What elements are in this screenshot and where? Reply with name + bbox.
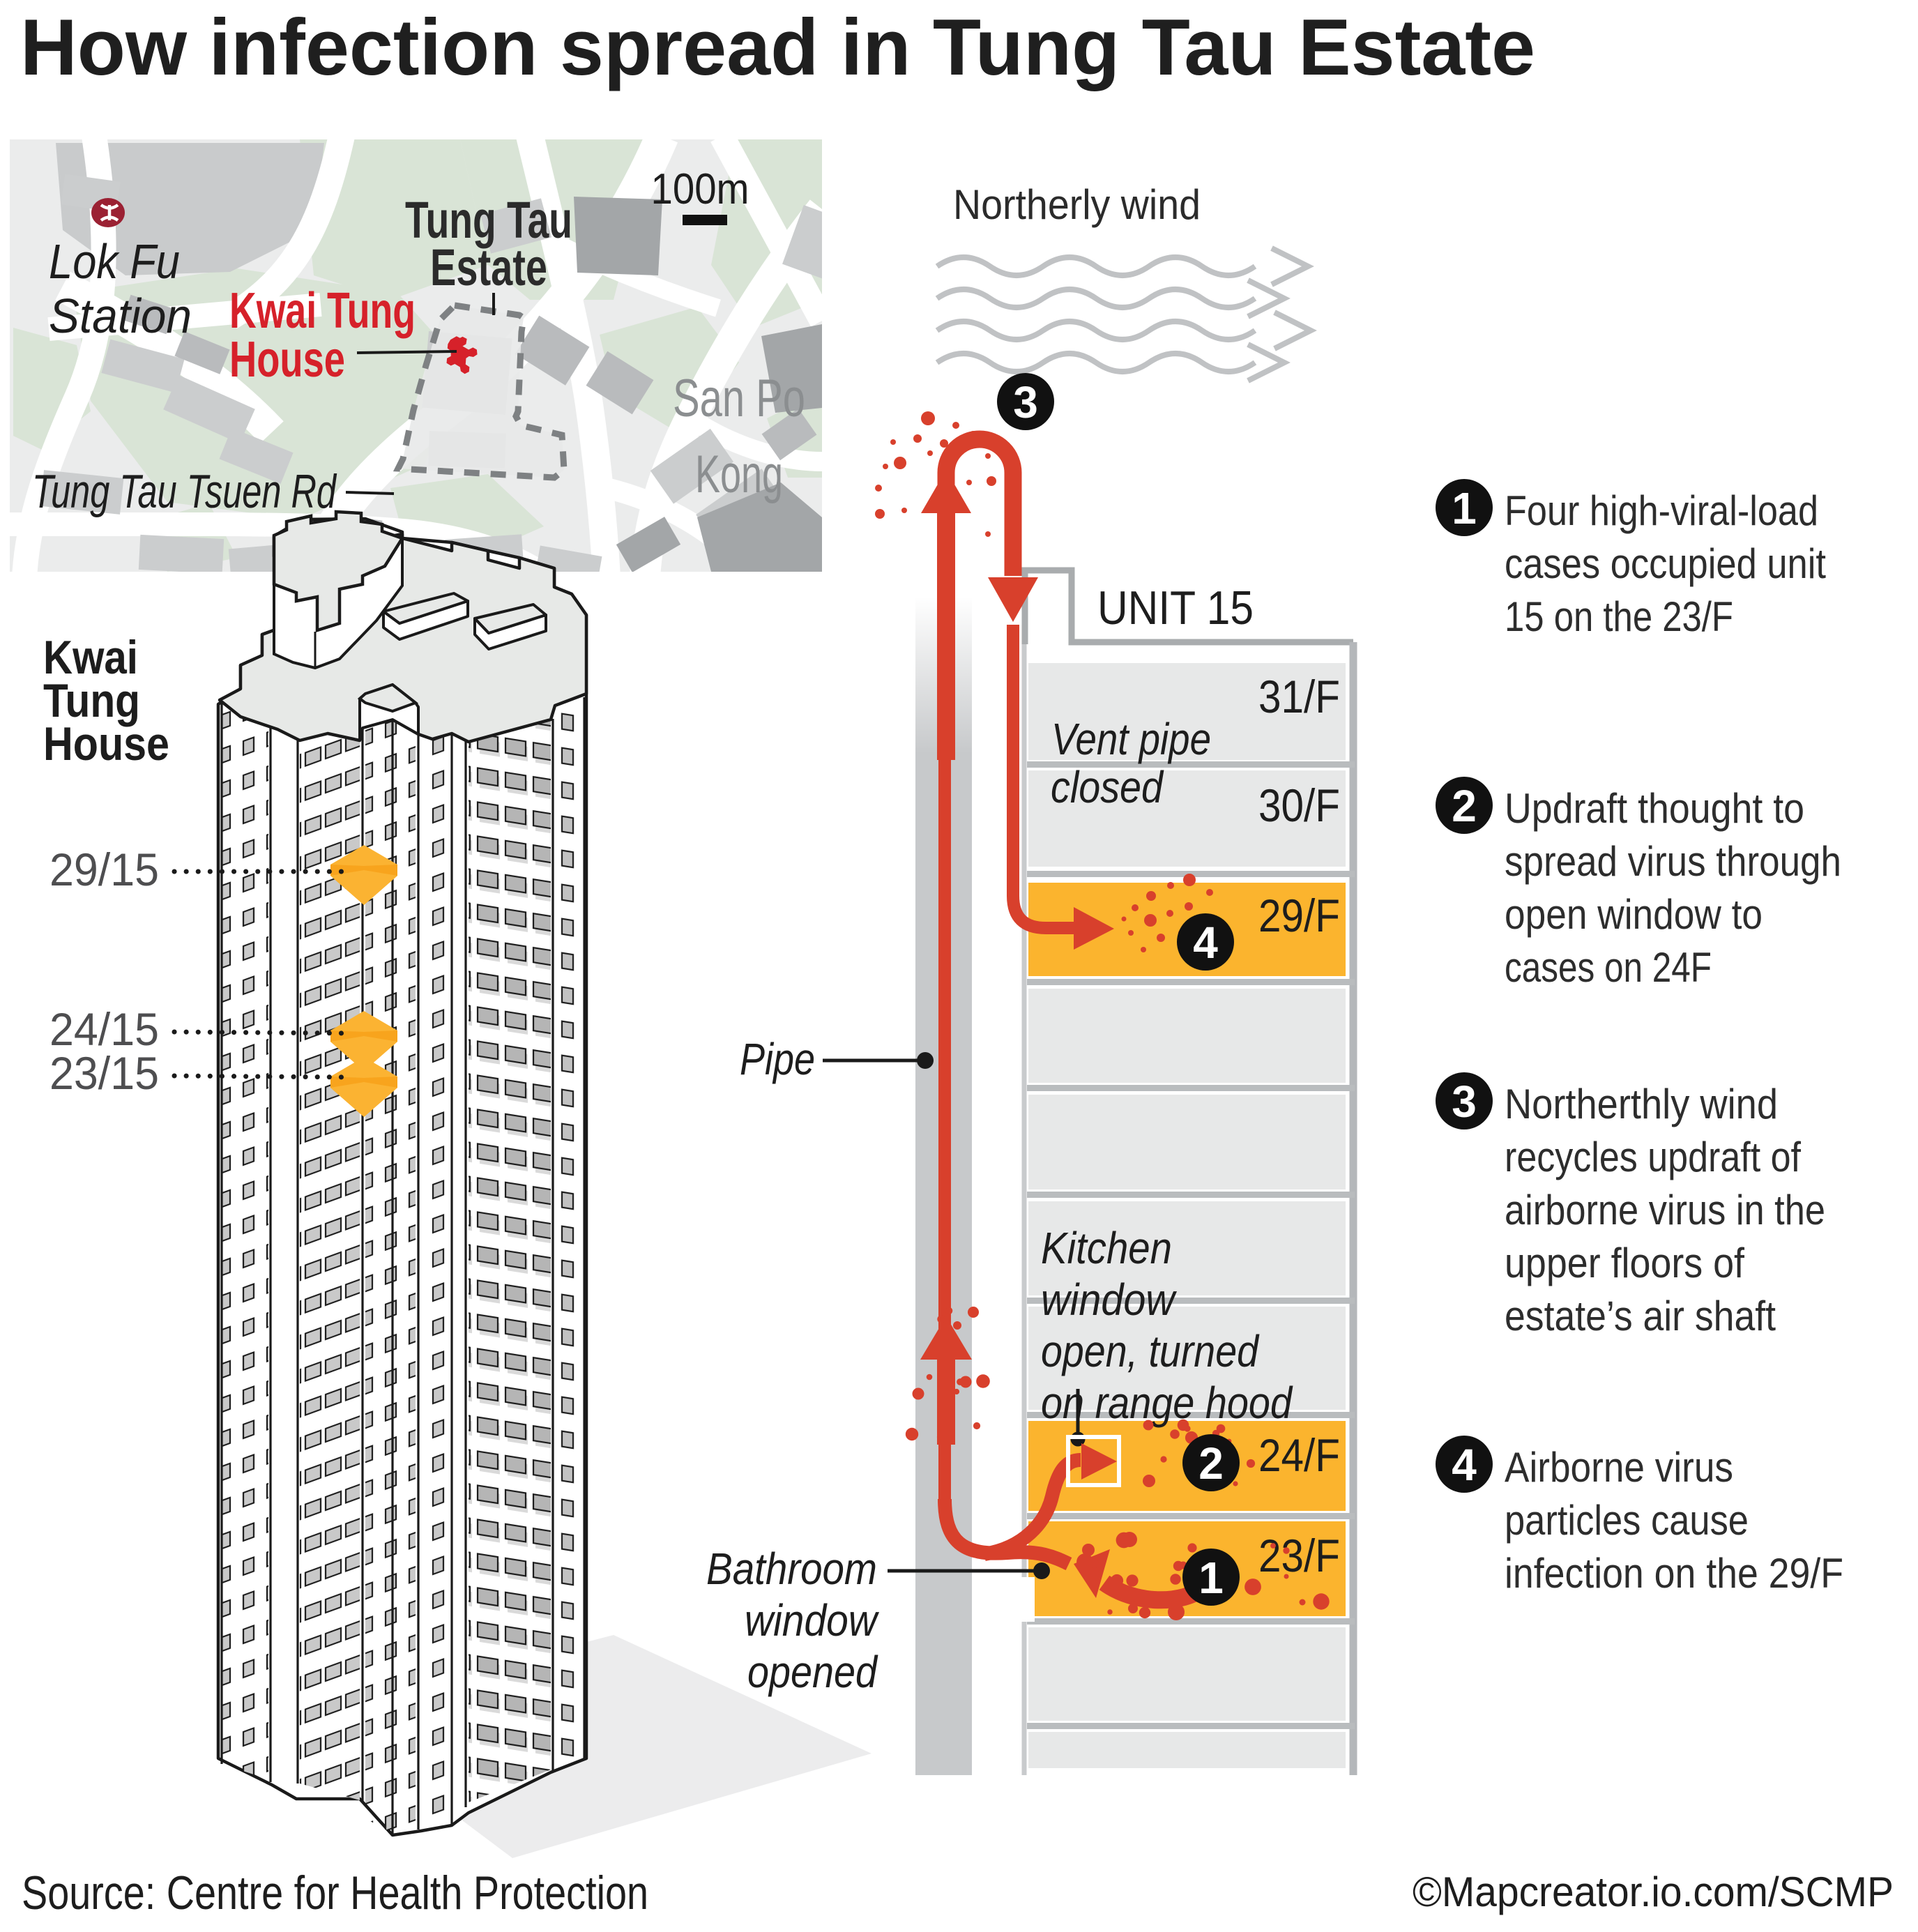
svg-text:cases on 24F: cases on 24F [1505,944,1712,991]
svg-text:airborne virus in the: airborne virus in the [1505,1187,1825,1233]
svg-text:open, turned: open, turned [1041,1326,1260,1376]
svg-text:estate’s air shaft: estate’s air shaft [1505,1293,1776,1339]
svg-text:3: 3 [1452,1077,1477,1127]
svg-text:window: window [745,1595,879,1645]
svg-text:3: 3 [1013,377,1038,427]
svg-text:Updraft thought to: Updraft thought to [1505,785,1804,832]
svg-text:Northerly wind: Northerly wind [953,181,1201,228]
svg-text:1: 1 [1452,483,1477,533]
svg-text:15 on the 23/F: 15 on the 23/F [1505,593,1733,640]
svg-text:Tung Tau Tsuen Rd: Tung Tau Tsuen Rd [32,465,337,518]
svg-text:House: House [43,717,169,770]
svg-text:23/15: 23/15 [50,1047,159,1099]
svg-text:How infection spread in Tung T: How infection spread in Tung Tau Estate [20,3,1535,92]
svg-text:Kwai Tung: Kwai Tung [229,283,416,339]
svg-text:1: 1 [1198,1553,1224,1603]
svg-text:4: 4 [1193,918,1218,968]
svg-text:Northerthly wind: Northerthly wind [1505,1081,1778,1127]
svg-text:29/15: 29/15 [50,844,159,895]
svg-text:spread virus through: spread virus through [1505,838,1841,885]
svg-text:cases occupied unit: cases occupied unit [1505,540,1826,587]
svg-text:24/F: 24/F [1258,1429,1340,1481]
svg-text:©Mapcreator.io.com/SCMP: ©Mapcreator.io.com/SCMP [1413,1869,1894,1915]
svg-text:Four high-viral-load: Four high-viral-load [1505,487,1818,534]
svg-text:Kitchen: Kitchen [1041,1223,1172,1273]
svg-text:San Po: San Po [673,369,805,428]
svg-text:31/F: 31/F [1258,671,1340,722]
svg-text:Bathroom: Bathroom [706,1544,877,1594]
svg-text:23/F: 23/F [1258,1530,1340,1581]
svg-text:100m: 100m [651,165,749,213]
svg-text:Vent pipe: Vent pipe [1051,714,1211,764]
svg-text:infection on the 29/F: infection on the 29/F [1505,1550,1843,1597]
svg-text:2: 2 [1198,1438,1224,1489]
svg-text:2: 2 [1452,781,1477,831]
svg-text:closed: closed [1051,762,1164,812]
svg-text:Kong: Kong [695,445,783,504]
svg-text:House: House [229,332,345,388]
svg-text:Pipe: Pipe [740,1034,815,1084]
svg-text:UNIT 15: UNIT 15 [1097,581,1254,634]
svg-text:29/F: 29/F [1258,890,1340,941]
svg-text:4: 4 [1452,1440,1477,1490]
svg-text:opened: opened [747,1647,878,1697]
svg-text:Estate: Estate [430,238,547,296]
svg-text:window: window [1041,1275,1177,1325]
svg-text:30/F: 30/F [1258,779,1340,831]
svg-text:Source: Centre for Health Prot: Source: Centre for Health Protection [22,1866,648,1919]
svg-text:particles cause: particles cause [1505,1497,1749,1544]
svg-text:upper floors of: upper floors of [1505,1240,1744,1286]
svg-text:Lok Fu: Lok Fu [49,234,180,289]
svg-text:Station: Station [49,289,192,343]
svg-text:Airborne virus: Airborne virus [1505,1444,1733,1491]
svg-text:recycles updraft of: recycles updraft of [1505,1134,1801,1180]
svg-text:open window to: open window to [1505,891,1763,938]
